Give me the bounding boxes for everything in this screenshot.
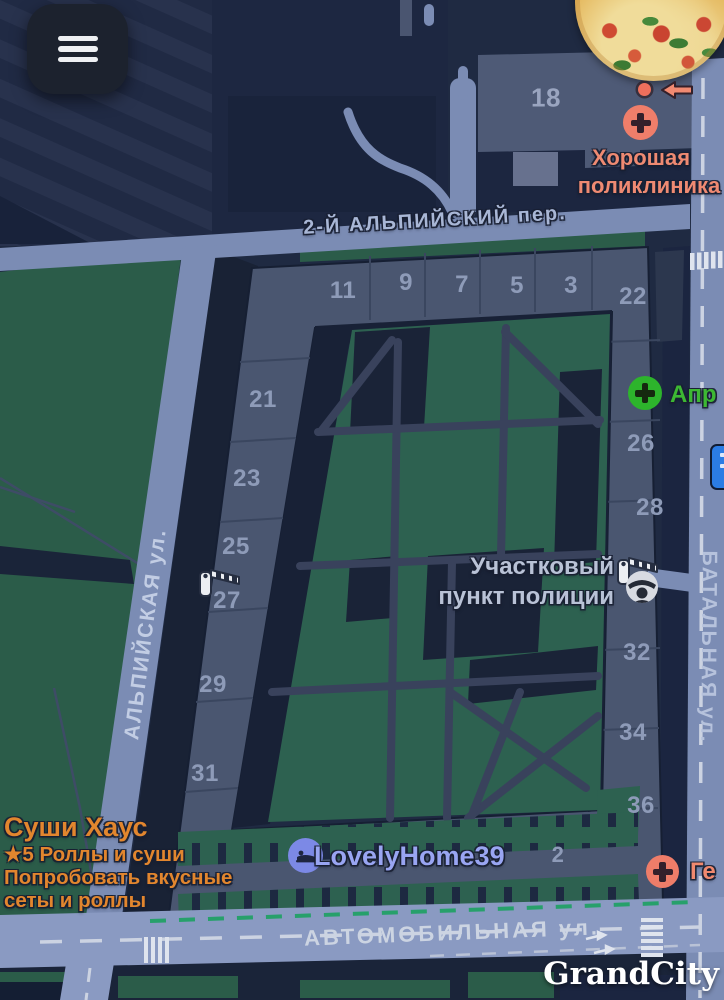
left-arrow-icon[interactable] <box>659 79 695 101</box>
house-number: 2 <box>552 842 565 868</box>
medical-cross-icon[interactable] <box>646 855 679 888</box>
house-number: 5 <box>510 272 524 300</box>
pharmacy-cross-icon[interactable] <box>628 376 662 410</box>
poi-hotel-label[interactable]: LovelyHome39 <box>314 841 505 872</box>
house-number: 36 <box>627 792 655 820</box>
poi-lab-label[interactable]: Ге <box>690 858 716 886</box>
house-number: 32 <box>623 639 651 667</box>
house-number: 22 <box>619 283 647 311</box>
map-view[interactable]: Хорошая поликлиника Апр Участковый пункт… <box>0 0 724 1000</box>
poi-sushi-title[interactable]: Суши Хаус <box>4 812 232 843</box>
house-number: 29 <box>199 671 227 699</box>
police-officer-icon[interactable] <box>622 567 662 607</box>
house-number: 28 <box>636 494 664 522</box>
house-number: 31 <box>191 760 219 788</box>
watermark: GrandCity <box>543 956 719 992</box>
house-number: 23 <box>233 465 261 493</box>
poi-sushi-promo1[interactable]: Попробовать вкусные <box>4 866 232 889</box>
poi-police-line2[interactable]: пункт полиции <box>404 582 614 612</box>
house-number: 26 <box>627 430 655 458</box>
house-number: 3 <box>564 272 578 300</box>
house-number: 9 <box>399 269 413 297</box>
house-number: 34 <box>619 719 647 747</box>
poi-sushi-rating[interactable]: ★5 Роллы и суши <box>4 843 232 866</box>
house-number: 25 <box>222 533 250 561</box>
poi-sushi-promo2[interactable]: сеты и роллы <box>4 889 232 912</box>
house-number: 18 <box>531 83 561 114</box>
house-number: 11 <box>330 277 356 305</box>
house-number: 21 <box>249 386 277 414</box>
medical-cross-icon[interactable] <box>623 105 658 140</box>
poi-clinic-line1[interactable]: Хорошая <box>592 145 690 171</box>
street-label-batalnaya: БАТАЛЬНАЯ ул. <box>695 550 721 743</box>
menu-button[interactable] <box>27 4 128 94</box>
house-number: 27 <box>213 587 241 615</box>
poi-pharmacy-label[interactable]: Апр <box>670 381 717 409</box>
house-number: 7 <box>455 271 469 299</box>
map-edit-dot[interactable] <box>638 83 651 96</box>
map-badge-partial[interactable] <box>710 444 724 490</box>
poi-clinic-line2[interactable]: поликлиника <box>578 173 721 199</box>
poi-police-line1[interactable]: Участковый <box>404 552 614 582</box>
